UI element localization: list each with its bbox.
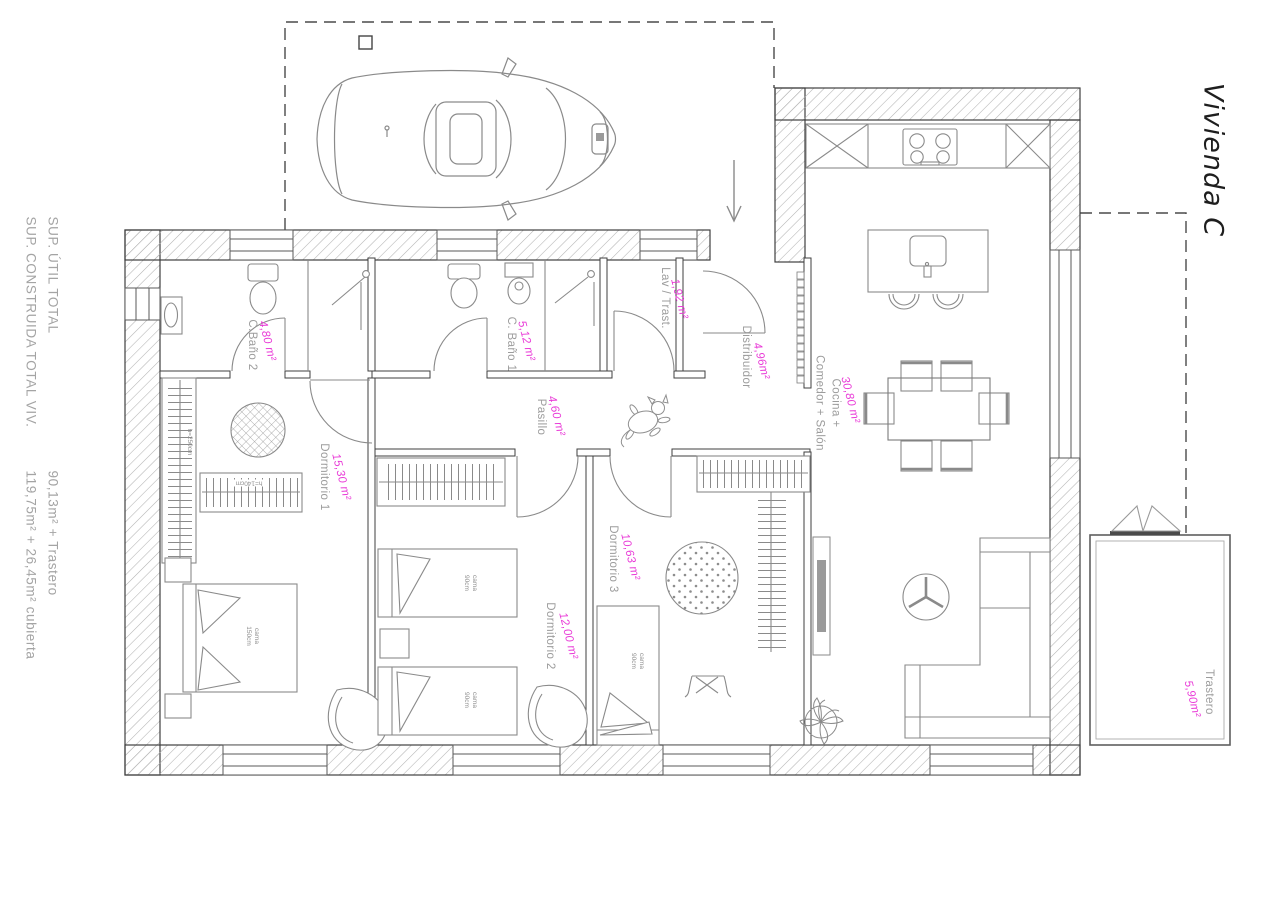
- wardrobe-label-h140: h=140cm: [234, 480, 265, 487]
- bed-label-cama90-a: cama 90cm: [462, 575, 478, 591]
- site-marker-square: [359, 36, 372, 49]
- dog-icon: [621, 395, 670, 447]
- room-name-trastero: Trastero: [1200, 669, 1216, 715]
- bed-label-cama150: cama 150cm: [244, 626, 260, 646]
- room-name-dormitorio1: Dormitorio 1: [315, 443, 331, 510]
- sup-construida-label: SUP. CONSTRUIDA TOTAL VIV.: [20, 217, 42, 428]
- dining-table-and-chairs: [864, 361, 1009, 471]
- car-icon: [317, 58, 616, 220]
- room-name-dormitorio2: Dormitorio 2: [541, 602, 557, 669]
- kitchen-island: [868, 230, 988, 309]
- room-name-distribuidor: Distribuidor: [737, 326, 753, 389]
- bed-label-cama90-c: cama 90cm: [629, 653, 645, 669]
- room-name-dormitorio3: Dormitorio 3: [604, 525, 620, 592]
- surface-summary-labels: SUP. ÚTIL TOTAL SUP. CONSTRUIDA TOTAL VI…: [20, 217, 63, 428]
- room-name-pasillo: Pasillo: [532, 399, 548, 436]
- hall-radiator: [797, 272, 804, 383]
- kitchen-counter: [806, 124, 1050, 168]
- page-title: Vivienda C: [1198, 83, 1229, 237]
- room-name-lavadero: Lav / Trast.: [656, 267, 672, 329]
- sup-construida-value: 119,75m² + 26,45m² cubierta: [20, 471, 42, 660]
- coffee-table: [903, 574, 949, 620]
- dorm1-furniture: [162, 378, 302, 718]
- floorplan-canvas: Vivienda C SUP. ÚTIL TOTAL SUP. CONSTRUI…: [0, 0, 1280, 906]
- sup-util-value: 90,13m² + Trastero: [42, 471, 64, 660]
- bed-label-cama90-b: cama 90cm: [462, 692, 478, 708]
- plant-dorm2-icon: [528, 685, 587, 747]
- dorm2-furniture: [377, 458, 517, 735]
- surface-summary-values: 90,13m² + Trastero 119,75m² + 26,45m² cu…: [20, 471, 63, 660]
- entrance-arrow-icon: [727, 160, 741, 221]
- dorm3-furniture: [597, 456, 810, 745]
- sup-util-label: SUP. ÚTIL TOTAL: [42, 217, 64, 428]
- wardrobe-label-h250: h=250cm: [185, 429, 193, 456]
- sofa: [905, 538, 1050, 738]
- tv-cabinet: [813, 537, 830, 655]
- room-name-salon: Cocina + Comedor + Salón: [811, 355, 842, 451]
